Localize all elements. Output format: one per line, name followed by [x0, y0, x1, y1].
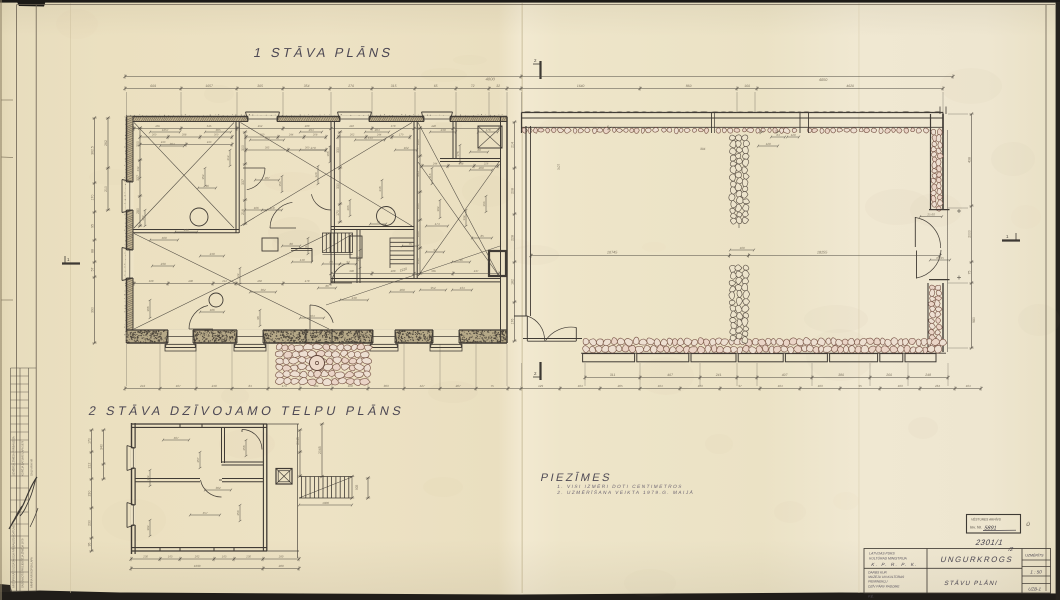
svg-text:164: 164 — [482, 201, 486, 206]
svg-text:204: 204 — [374, 128, 380, 132]
svg-text:2045: 2045 — [318, 446, 322, 454]
svg-text:2 STĀVA DZĪVOJAMO TELPU PL: 2 STĀVA DZĪVOJAMO TELPU PLĀNS — [87, 404, 405, 418]
svg-text:240: 240 — [209, 252, 215, 256]
svg-text:1 STĀVA PLĀNS: 1 STĀVA PLĀNS — [252, 45, 395, 60]
svg-text:60 25: 60 25 — [936, 256, 944, 260]
svg-text:303: 303 — [383, 384, 389, 388]
svg-text:330: 330 — [336, 147, 340, 153]
svg-text:PIEZĪMES: PIEZĪMES — [539, 472, 613, 484]
svg-text:208: 208 — [478, 166, 484, 170]
svg-text:95: 95 — [90, 224, 94, 228]
svg-text:311: 311 — [610, 373, 616, 377]
svg-text:1057: 1057 — [205, 84, 213, 88]
svg-text:104: 104 — [657, 384, 663, 388]
svg-text:18255: 18255 — [817, 251, 828, 255]
svg-text:241: 241 — [716, 373, 722, 377]
svg-text:170: 170 — [336, 210, 340, 216]
svg-text:178: 178 — [456, 151, 460, 156]
svg-text:270: 270 — [310, 146, 316, 150]
svg-text:104: 104 — [965, 384, 971, 388]
svg-text:64: 64 — [774, 130, 778, 134]
svg-text:427: 427 — [419, 384, 425, 388]
svg-text:260: 260 — [886, 373, 892, 377]
svg-text:72: 72 — [470, 84, 474, 88]
svg-text:10745: 10745 — [607, 251, 618, 255]
svg-text:88: 88 — [90, 249, 94, 253]
svg-text:4620: 4620 — [846, 84, 854, 88]
svg-text:150: 150 — [356, 256, 360, 261]
svg-text:140: 140 — [299, 258, 305, 262]
svg-text:VĒSTURES ARHĪVS: VĒSTURES ARHĪVS — [971, 518, 1001, 522]
svg-text:206: 206 — [346, 205, 350, 210]
svg-text:315: 315 — [391, 84, 397, 88]
svg-text:120: 120 — [790, 133, 796, 137]
svg-text:442: 442 — [136, 166, 140, 171]
svg-text:230: 230 — [87, 491, 91, 497]
svg-text:362.5: 362.5 — [90, 146, 94, 155]
svg-text:KOPĒJA DATUMS LAPA 1979: KOPĒJA DATUMS LAPA 1979 — [21, 440, 25, 476]
svg-text:APSTIPRINĀTS IZGATAVOJA PĀRBAU: APSTIPRINĀTS IZGATAVOJA PĀRBAUDĪJA DATUM… — [12, 525, 16, 588]
svg-text:DARBS KUR: DARBS KUR — [868, 571, 888, 575]
svg-text:443: 443 — [367, 136, 373, 140]
svg-text:407: 407 — [667, 373, 673, 377]
svg-text:KULTŪRAS MINISTRIJA: KULTŪRAS MINISTRIJA — [869, 557, 908, 561]
svg-text:214: 214 — [510, 142, 514, 148]
svg-text:32: 32 — [496, 84, 500, 88]
svg-text:302: 302 — [436, 206, 440, 211]
svg-text:DZĪV PĀRV PADOME: DZĪV PĀRV PADOME — [868, 585, 901, 589]
svg-text:302: 302 — [146, 525, 150, 530]
svg-text:160: 160 — [739, 246, 745, 250]
svg-text:2000: 2000 — [967, 230, 971, 238]
svg-text:174: 174 — [434, 222, 440, 226]
svg-text:186: 186 — [209, 308, 215, 312]
svg-text:952: 952 — [430, 286, 436, 290]
svg-text:65: 65 — [433, 84, 437, 88]
svg-text:270: 270 — [348, 84, 354, 88]
svg-text:337: 337 — [241, 179, 245, 185]
svg-text:1000: 1000 — [322, 501, 330, 505]
svg-text:354: 354 — [304, 84, 310, 88]
svg-text:262: 262 — [104, 140, 108, 146]
svg-text:304: 304 — [169, 142, 175, 146]
svg-text:118: 118 — [428, 173, 432, 178]
svg-text:380: 380 — [838, 373, 844, 377]
svg-text:57: 57 — [90, 268, 94, 272]
svg-text:103: 103 — [697, 384, 703, 388]
svg-text:300: 300 — [136, 141, 140, 147]
svg-text:132: 132 — [462, 215, 466, 220]
svg-text:352: 352 — [201, 174, 205, 179]
svg-text:407: 407 — [173, 436, 179, 440]
svg-text:216: 216 — [241, 209, 245, 215]
svg-text:UNGURKROGS: UNGURKROGS — [940, 555, 1015, 564]
svg-text:280: 280 — [136, 208, 140, 214]
svg-text:302: 302 — [146, 475, 150, 480]
svg-text:103: 103 — [817, 384, 823, 388]
svg-text:238: 238 — [160, 262, 166, 266]
svg-text:354: 354 — [264, 136, 270, 140]
svg-text:94: 94 — [304, 244, 308, 248]
svg-text:Inv. Nr.: Inv. Nr. — [970, 526, 982, 530]
svg-text:176: 176 — [485, 128, 491, 132]
svg-text:2. UZMĒRĪŠANA VEIKTA 1979.G.: 2. UZMĒRĪŠANA VEIKTA 1979.G. MAIJĀ — [557, 489, 695, 496]
svg-text:180: 180 — [758, 129, 762, 134]
svg-text:238: 238 — [378, 186, 382, 191]
svg-text:P.Ē.: P.Ē. — [868, 595, 875, 599]
svg-text:210: 210 — [104, 186, 108, 192]
svg-text:166: 166 — [253, 206, 259, 210]
svg-text:407: 407 — [782, 373, 788, 377]
svg-text:330: 330 — [336, 183, 340, 189]
svg-text:260: 260 — [416, 139, 420, 145]
svg-text:UZMĒRĪJA ZĪMĒJA PĀRBAUDĪJA: UZMĒRĪJA ZĪMĒJA PĀRBAUDĪJA — [12, 436, 16, 476]
svg-text:1. VISI IZMĒRI DOTI CENTIME: 1. VISI IZMĒRI DOTI CENTIMETROS — [557, 483, 684, 490]
svg-text:460: 460 — [161, 236, 167, 240]
svg-text:182: 182 — [510, 279, 514, 285]
svg-text:103: 103 — [897, 384, 903, 388]
svg-text:388: 388 — [146, 306, 150, 311]
svg-text:2301/1: 2301/1 — [974, 538, 1004, 547]
svg-text:170: 170 — [90, 195, 94, 201]
svg-text:390: 390 — [90, 307, 94, 313]
svg-text:107: 107 — [175, 384, 181, 388]
svg-text:188: 188 — [326, 151, 330, 156]
svg-text:980: 980 — [972, 317, 976, 323]
svg-text:257: 257 — [196, 457, 200, 462]
svg-text:445: 445 — [606, 125, 610, 130]
svg-text:905: 905 — [355, 484, 359, 490]
svg-text:282: 282 — [141, 215, 145, 220]
svg-text:208: 208 — [510, 188, 514, 194]
svg-text:294: 294 — [308, 128, 314, 132]
svg-text:337: 337 — [136, 175, 140, 181]
svg-text:300: 300 — [241, 145, 245, 151]
svg-text:609: 609 — [150, 84, 156, 88]
svg-text:GALV ARH NR: GALV ARH NR — [30, 459, 34, 476]
svg-text:250: 250 — [236, 510, 240, 515]
svg-text:208: 208 — [399, 288, 405, 292]
svg-text:280: 280 — [278, 564, 284, 568]
svg-text:196: 196 — [183, 228, 189, 232]
svg-text:162: 162 — [403, 146, 409, 150]
svg-text:122: 122 — [236, 273, 240, 278]
svg-text:242: 242 — [140, 384, 146, 388]
svg-text:UZMĒRĪTS: UZMĒRĪTS — [1025, 554, 1045, 558]
svg-text:212: 212 — [226, 155, 230, 160]
svg-text:3.07: 3.07 — [557, 164, 561, 170]
svg-text:104: 104 — [577, 384, 583, 388]
svg-text:134: 134 — [459, 286, 465, 290]
svg-text:UZB-1: UZB-1 — [1028, 587, 1042, 592]
svg-text:230: 230 — [87, 520, 91, 526]
svg-text:MUZEJU UN KULTŪRAS: MUZEJU UN KULTŪRAS — [868, 575, 905, 579]
svg-text:302: 302 — [215, 486, 221, 490]
svg-text:228: 228 — [510, 235, 514, 241]
svg-text:LATVIJAS PSRS: LATVIJAS PSRS — [869, 552, 896, 556]
svg-text:95: 95 — [87, 543, 91, 547]
svg-text:248: 248 — [925, 373, 931, 377]
svg-text:1030: 1030 — [194, 564, 202, 568]
svg-text:176: 176 — [510, 319, 514, 325]
svg-text:120: 120 — [765, 142, 771, 146]
svg-text:118: 118 — [269, 206, 275, 210]
svg-text:120: 120 — [314, 172, 318, 177]
svg-text:ARHĪVA NR KOPIJA LAPA: ARHĪVA NR KOPIJA LAPA — [30, 557, 34, 588]
svg-text:25 60: 25 60 — [927, 212, 935, 216]
svg-text:4050: 4050 — [819, 78, 828, 82]
svg-text:1640: 1640 — [577, 84, 585, 88]
svg-text:240: 240 — [211, 384, 217, 388]
svg-text:K. P. R. P. K.: K. P. R. P. K. — [871, 562, 919, 567]
svg-text:305: 305 — [257, 84, 263, 88]
svg-text:438: 438 — [967, 157, 971, 163]
svg-text:160: 160 — [744, 84, 750, 88]
svg-text:265: 265 — [617, 384, 623, 388]
svg-text:302: 302 — [260, 288, 266, 292]
svg-text:304: 304 — [700, 147, 706, 151]
svg-text:75: 75 — [967, 271, 971, 275]
svg-text:335: 335 — [416, 171, 420, 177]
svg-text:104: 104 — [777, 384, 783, 388]
svg-text:240: 240 — [416, 258, 420, 264]
svg-text:260: 260 — [416, 203, 420, 209]
svg-text:258: 258 — [242, 445, 246, 450]
svg-text:104: 104 — [309, 314, 315, 318]
svg-text:457: 457 — [202, 511, 208, 515]
svg-text:260: 260 — [416, 231, 420, 237]
svg-text:2045: 2045 — [296, 437, 300, 445]
svg-text:340: 340 — [99, 444, 103, 450]
svg-text:1 : 50: 1 : 50 — [1030, 570, 1043, 575]
svg-text:SASKAŅOTS PROJEKTĒJA ZĪMĒJA 19: SASKAŅOTS PROJEKTĒJA ZĪMĒJA 1979 — [21, 538, 25, 588]
svg-text:240: 240 — [351, 296, 357, 300]
svg-text:129: 129 — [538, 384, 544, 388]
svg-text:207: 207 — [264, 176, 270, 180]
svg-text:PIEMINEKĻU: PIEMINEKĻU — [868, 580, 889, 584]
svg-text:STĀVU PLĀNI: STĀVU PLĀNI — [944, 579, 999, 587]
svg-text:860: 860 — [686, 84, 692, 88]
svg-text:264: 264 — [935, 384, 941, 388]
svg-text:98: 98 — [256, 316, 260, 320]
svg-text:170: 170 — [87, 438, 91, 444]
svg-text:212: 212 — [87, 463, 91, 469]
svg-text:4000: 4000 — [485, 77, 496, 82]
svg-text:154: 154 — [278, 181, 282, 186]
svg-text:267: 267 — [455, 384, 461, 388]
